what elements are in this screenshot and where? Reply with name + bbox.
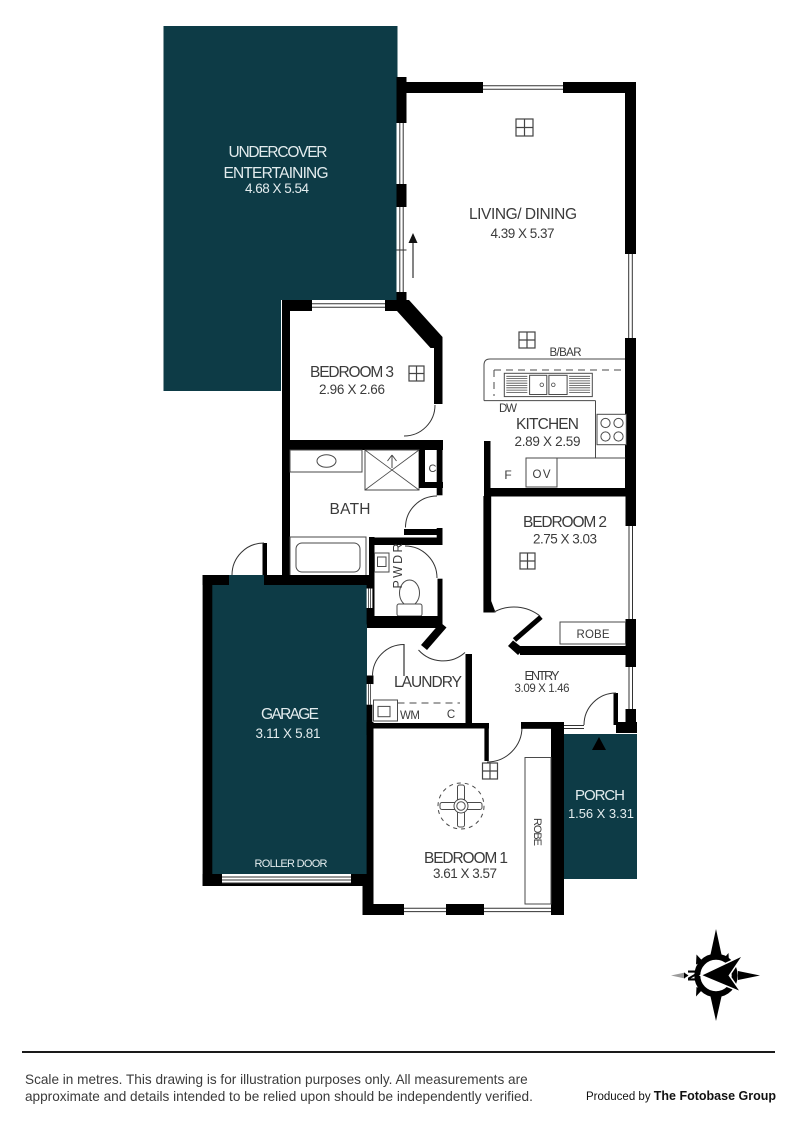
svg-text:2.89 X 2.59: 2.89 X 2.59 [515, 434, 581, 449]
svg-text:KITCHEN: KITCHEN [516, 416, 579, 433]
svg-text:Produced by The Fotobase Group: Produced by The Fotobase Group [586, 1089, 776, 1103]
svg-text:C: C [429, 463, 437, 475]
svg-text:4.39 X 5.37: 4.39 X 5.37 [491, 226, 555, 241]
svg-text:4.68 X 5.54: 4.68 X 5.54 [245, 181, 309, 196]
svg-text:approximate and details intend: approximate and details intended to be r… [25, 1089, 533, 1104]
svg-text:BEDROOM 2: BEDROOM 2 [523, 514, 607, 531]
svg-text:C: C [447, 709, 455, 721]
svg-text:3.11 X 5.81: 3.11 X 5.81 [256, 726, 321, 741]
svg-text:DW: DW [499, 403, 517, 415]
svg-text:LIVING/ DINING: LIVING/ DINING [469, 206, 577, 223]
svg-text:F: F [504, 468, 511, 482]
svg-text:GARAGE: GARAGE [261, 706, 319, 723]
svg-text:LAUNDRY: LAUNDRY [394, 674, 462, 691]
svg-text:BEDROOM 3: BEDROOM 3 [310, 364, 394, 381]
svg-text:B/BAR: B/BAR [550, 347, 582, 359]
svg-text:3.61 X 3.57: 3.61 X 3.57 [433, 866, 497, 881]
svg-text:2.96 X 2.66: 2.96 X 2.66 [319, 382, 385, 397]
svg-text:PORCH: PORCH [575, 787, 625, 804]
svg-text:1.56 X 3.31: 1.56 X 3.31 [568, 806, 634, 821]
svg-text:WM: WM [400, 710, 420, 722]
svg-text:3.09 X 1.46: 3.09 X 1.46 [515, 683, 570, 695]
svg-text:BATH: BATH [330, 501, 371, 518]
svg-text:ENTRY: ENTRY [525, 669, 561, 683]
svg-text:2.75 X 3.03: 2.75 X 3.03 [533, 532, 597, 547]
svg-text:ROBE: ROBE [577, 629, 610, 641]
svg-text:ENTERTAINING: ENTERTAINING [224, 165, 329, 182]
svg-text:ROLLER DOOR: ROLLER DOOR [255, 858, 328, 870]
svg-text:UNDERCOVER: UNDERCOVER [229, 144, 328, 161]
svg-text:N: N [685, 969, 704, 981]
svg-text:ROBE: ROBE [531, 818, 543, 846]
svg-text:BEDROOM 1: BEDROOM 1 [424, 850, 508, 867]
svg-text:Scale in metres. This drawing: Scale in metres. This drawing is for ill… [25, 1072, 528, 1087]
